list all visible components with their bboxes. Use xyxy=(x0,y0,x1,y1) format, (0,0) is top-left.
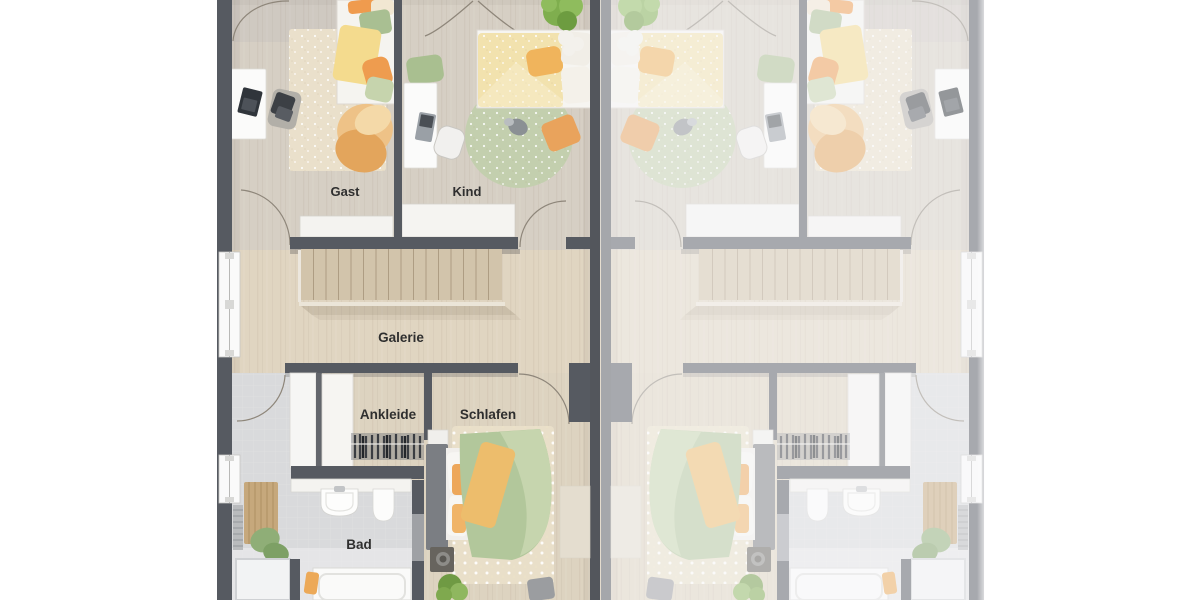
svg-text:Schlafen: Schlafen xyxy=(460,407,516,422)
svg-text:Galerie: Galerie xyxy=(378,330,424,345)
svg-text:Gast: Gast xyxy=(331,184,361,199)
svg-text:Ankleide: Ankleide xyxy=(360,407,417,422)
svg-text:Bad: Bad xyxy=(346,537,372,552)
svg-text:Kind: Kind xyxy=(453,184,482,199)
